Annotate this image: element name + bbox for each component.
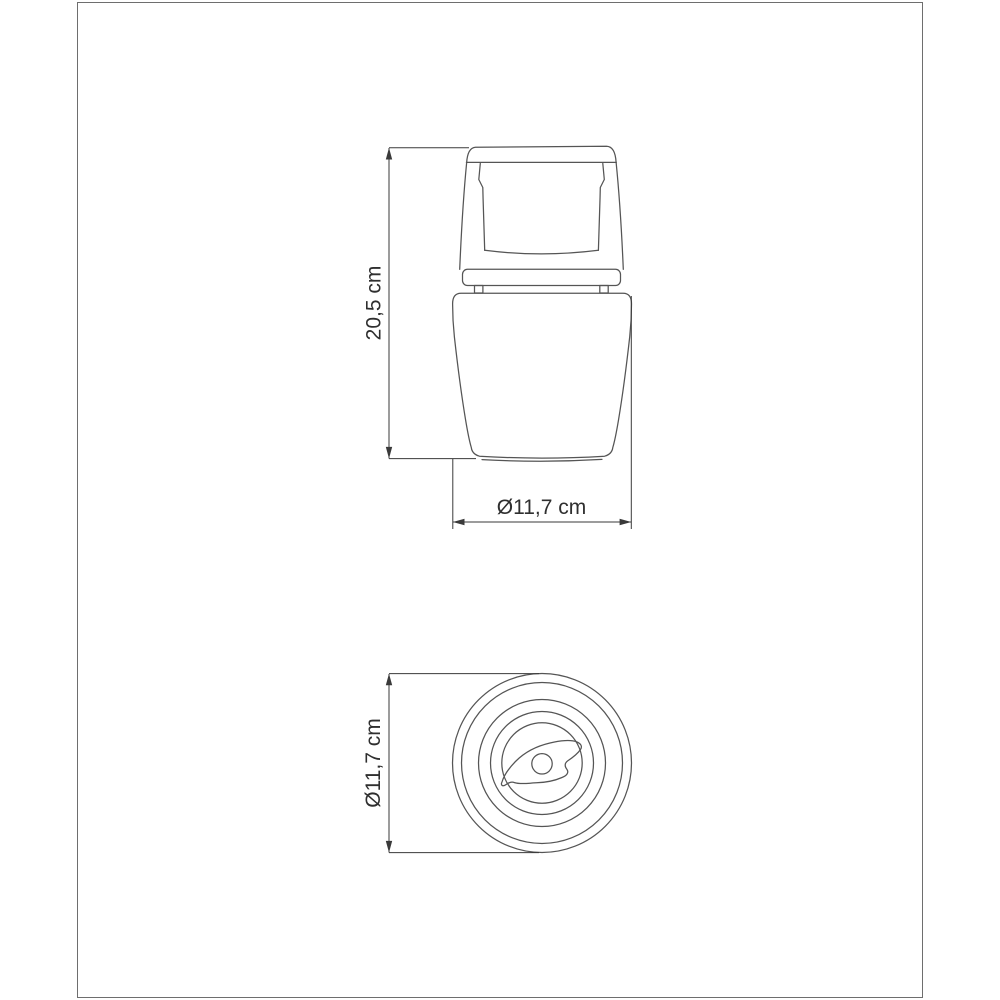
top-view-ring-outer: [453, 674, 632, 853]
dimension-drawing: 20,5 cm Ø11,7 cm Ø11,: [0, 0, 1000, 1000]
top-view-ring-2: [462, 683, 623, 844]
height-dimension: 20,5 cm: [363, 148, 477, 459]
width-dimension: Ø11,7 cm: [453, 296, 632, 529]
top-view-ring-3: [479, 700, 606, 827]
cup-bottom-curve: [485, 250, 599, 254]
width-arrow-left: [453, 519, 465, 525]
diameter-dimension-label: Ø11,7 cm: [362, 718, 385, 807]
height-arrow-bottom: [386, 447, 392, 459]
cup-inner-wall-right: [598, 163, 604, 250]
base-foot-line: [482, 459, 602, 461]
width-dimension-label: Ø11,7 cm: [497, 496, 586, 519]
height-dimension-label: 20,5 cm: [363, 266, 386, 341]
grinding-blade: [501, 741, 581, 786]
base-outline: [453, 293, 632, 458]
lid-collar: [463, 269, 621, 285]
lid-outer-outline: [460, 146, 624, 269]
diameter-arrow-bottom: [386, 841, 392, 853]
height-arrow-top: [386, 148, 392, 160]
page: 20,5 cm Ø11,7 cm Ø11,: [0, 0, 1000, 1000]
width-arrow-right: [620, 519, 632, 525]
top-view-ring-4: [491, 712, 594, 815]
locking-lug-left: [475, 286, 483, 294]
top-view: [453, 674, 632, 853]
cup-inner-wall-left: [479, 163, 485, 250]
locking-lug-right: [600, 286, 608, 294]
side-view: [453, 146, 632, 461]
blade-hub: [532, 754, 552, 774]
diameter-dimension: Ø11,7 cm: [362, 674, 539, 853]
diameter-arrow-top: [386, 674, 392, 686]
